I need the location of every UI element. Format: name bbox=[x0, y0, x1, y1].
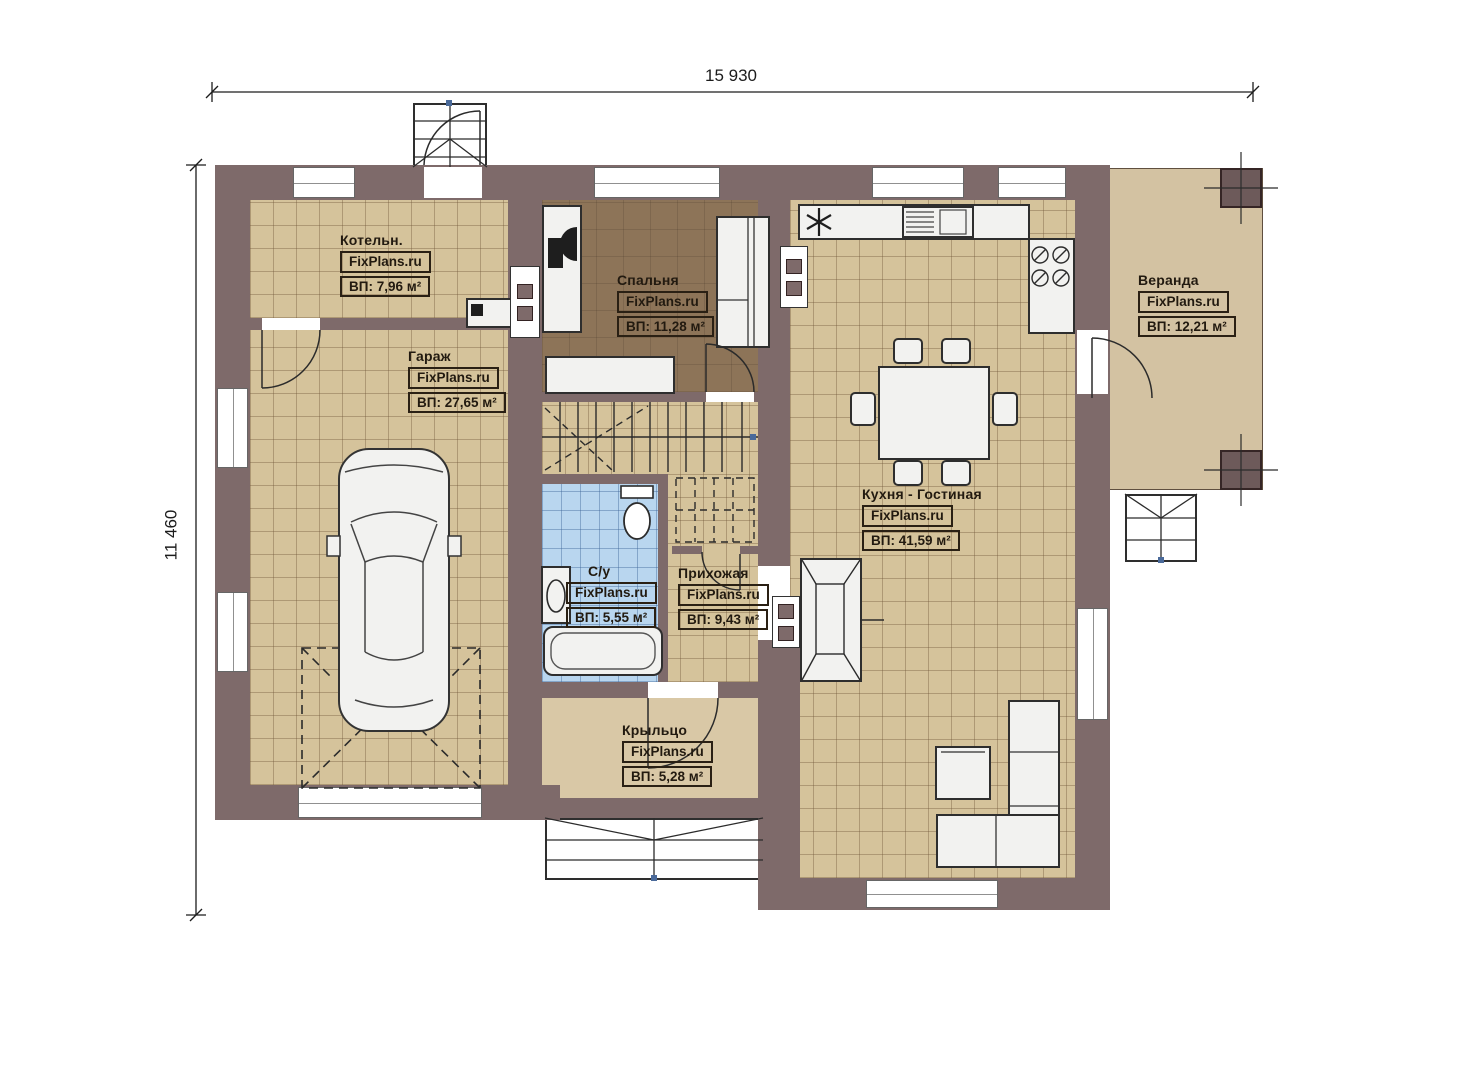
counter-corner-hob bbox=[1028, 238, 1075, 334]
door-opening-veranda bbox=[1077, 330, 1108, 394]
room-label-veranda: Веранда FixPlans.ru ВП: 12,21 м² bbox=[1138, 272, 1236, 337]
stove-sink-unit bbox=[902, 206, 974, 238]
door-opening-boiler-entry bbox=[424, 167, 482, 198]
vent-shaft-kitchen bbox=[772, 596, 800, 648]
chair bbox=[893, 460, 923, 486]
vent-shaft-boiler bbox=[510, 266, 540, 338]
room-brand: FixPlans.ru bbox=[617, 291, 708, 313]
veranda-steps bbox=[1125, 494, 1197, 562]
fireplace bbox=[800, 558, 862, 682]
room-label-bedroom: Спальня FixPlans.ru ВП: 11,28 м² bbox=[617, 272, 714, 337]
garage-door bbox=[298, 787, 482, 818]
room-name: Гараж bbox=[408, 348, 506, 364]
coffee-table bbox=[935, 746, 991, 800]
window-boiler-top bbox=[293, 167, 355, 198]
desk bbox=[542, 205, 582, 333]
room-area: ВП: 9,43 м² bbox=[678, 609, 768, 631]
room-name: Кухня - Гостиная bbox=[862, 486, 982, 502]
wall-hall-partition-b bbox=[740, 546, 758, 554]
room-area: ВП: 11,28 м² bbox=[617, 316, 714, 338]
wall-right bbox=[1075, 165, 1110, 910]
wardrobe bbox=[716, 216, 770, 348]
room-name: Веранда bbox=[1138, 272, 1236, 288]
window-garage-left-2 bbox=[217, 592, 248, 672]
window-kitchen-bottom bbox=[866, 880, 998, 908]
room-label-porch: Крыльцо FixPlans.ru ВП: 5,28 м² bbox=[622, 722, 713, 787]
room-name: Прихожая bbox=[678, 565, 769, 581]
door-opening-front bbox=[648, 682, 718, 698]
porch-steps bbox=[545, 818, 763, 880]
room-label-boiler: Котельн. FixPlans.ru ВП: 7,96 м² bbox=[340, 232, 431, 297]
room-label-hallway: Прихожая FixPlans.ru ВП: 9,43 м² bbox=[678, 565, 769, 630]
room-brand: FixPlans.ru bbox=[1138, 291, 1229, 313]
room-brand: FixPlans.ru bbox=[408, 367, 499, 389]
room-name: Котельн. bbox=[340, 232, 431, 248]
wall-bath-north bbox=[542, 474, 666, 484]
room-name: С/у bbox=[588, 563, 657, 579]
boiler-panel bbox=[471, 304, 483, 316]
chair bbox=[850, 392, 876, 426]
chair bbox=[992, 392, 1018, 426]
bedroom-dresser bbox=[545, 356, 675, 394]
room-area: ВП: 27,65 м² bbox=[408, 392, 506, 414]
room-brand: FixPlans.ru bbox=[622, 741, 713, 763]
chair bbox=[941, 460, 971, 486]
room-label-kitchen-living: Кухня - Гостиная FixPlans.ru ВП: 41,59 м… bbox=[862, 486, 982, 551]
bathtub bbox=[543, 626, 663, 676]
room-area: ВП: 5,55 м² bbox=[566, 607, 656, 629]
room-name: Спальня bbox=[617, 272, 714, 288]
room-area: ВП: 5,28 м² bbox=[622, 766, 712, 788]
window-kitchen-right bbox=[1077, 608, 1108, 720]
veranda-post-top bbox=[1220, 168, 1262, 208]
floor-plan: 15 930 11 460 Котельн. FixPlans.ru ВП: 7… bbox=[0, 0, 1473, 1080]
room-label-bathroom: С/у FixPlans.ru ВП: 5,55 м² bbox=[566, 563, 657, 628]
room-brand: FixPlans.ru bbox=[862, 505, 953, 527]
wall-hall-partition-a bbox=[672, 546, 702, 554]
dining-table bbox=[878, 366, 990, 460]
door-opening-boiler-garage bbox=[262, 318, 320, 330]
window-garage-left-1 bbox=[217, 388, 248, 468]
room-area: ВП: 7,96 м² bbox=[340, 276, 430, 298]
veranda-post-bottom bbox=[1220, 450, 1262, 490]
sofa-horizontal bbox=[936, 814, 1060, 868]
room-brand: FixPlans.ru bbox=[340, 251, 431, 273]
entry-steps-top bbox=[413, 103, 487, 167]
computer-monitor bbox=[548, 238, 563, 268]
dimension-top-label: 15 930 bbox=[705, 66, 757, 86]
room-area: ВП: 12,21 м² bbox=[1138, 316, 1236, 338]
dimension-left-label: 11 460 bbox=[161, 510, 181, 561]
room-area: ВП: 41,59 м² bbox=[862, 530, 960, 552]
wall-left bbox=[215, 165, 250, 820]
room-name: Крыльцо bbox=[622, 722, 713, 738]
window-bedroom-top bbox=[594, 167, 720, 198]
vent-shaft-bedroom bbox=[780, 246, 808, 308]
wall-kitchen-west-lower bbox=[758, 640, 800, 910]
wall-porch-south bbox=[542, 798, 762, 818]
window-kitchen-top-2 bbox=[998, 167, 1066, 198]
door-opening-bedroom bbox=[706, 392, 754, 402]
room-brand: FixPlans.ru bbox=[566, 582, 657, 604]
chair bbox=[941, 338, 971, 364]
room-label-garage: Гараж FixPlans.ru ВП: 27,65 м² bbox=[408, 348, 506, 413]
room-brand: FixPlans.ru bbox=[678, 584, 769, 606]
chair bbox=[893, 338, 923, 364]
window-kitchen-top-1 bbox=[872, 167, 964, 198]
